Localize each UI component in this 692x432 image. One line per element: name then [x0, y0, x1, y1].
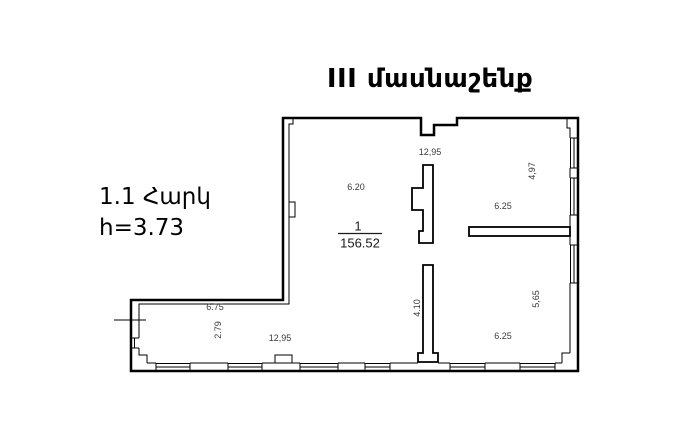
dim-label-upper-right-height: 4,97: [527, 162, 537, 180]
central-pillar: [412, 165, 433, 243]
dim-label-partition-height: 4.10: [412, 299, 422, 317]
inner-wall-bottom: [147, 353, 570, 363]
room-number: 1: [354, 219, 361, 234]
dim-label-top-width: 12,95: [419, 147, 442, 157]
dim-label-wing-height: 2.79: [213, 321, 223, 339]
partition-wall-horizontal: [469, 227, 570, 236]
floor-plan-canvas: 1 156.52 12,95 6.20 4,97 6.25 5,65 6.25 …: [0, 0, 692, 432]
dim-label-upper-left-width: 6.20: [347, 182, 365, 192]
floor-plan-page: III մասնաշենք 1.1 Հարկ h=3.73: [0, 0, 692, 432]
dim-label-upper-right-width: 6.25: [494, 201, 512, 211]
dim-label-wing-top-width: 6.75: [206, 302, 224, 312]
dim-label-wing-bottom-width: 12,95: [269, 333, 292, 343]
bottom-wall-pier: [275, 355, 292, 363]
left-wall-pilaster: [289, 202, 295, 217]
dim-label-lower-right-height: 5,65: [531, 290, 541, 308]
dim-label-lower-right-width: 6.25: [494, 331, 512, 341]
room-area: 156.52: [340, 236, 380, 251]
